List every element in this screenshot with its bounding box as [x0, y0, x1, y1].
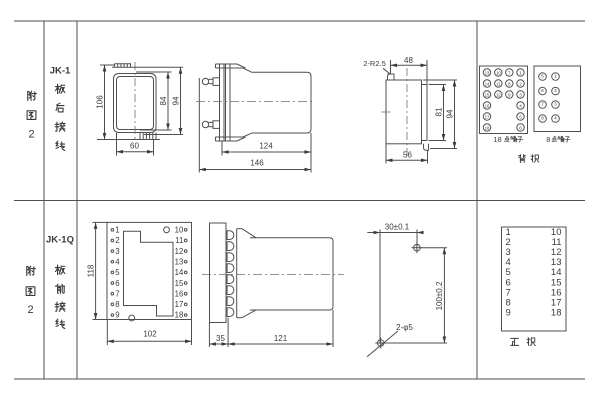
svg-text:2: 2: [27, 304, 33, 316]
svg-text:8: 8: [546, 135, 550, 144]
svg-text:48: 48: [404, 56, 413, 65]
svg-text:9: 9: [115, 311, 119, 320]
svg-text:3: 3: [554, 101, 557, 107]
svg-text:18: 18: [551, 308, 562, 319]
svg-text:94: 94: [446, 109, 455, 118]
svg-text:13: 13: [485, 70, 490, 75]
svg-text:18: 18: [485, 125, 490, 130]
svg-text:102: 102: [143, 330, 157, 339]
svg-text:2-R2.5: 2-R2.5: [363, 59, 386, 68]
svg-text:10: 10: [496, 70, 501, 75]
svg-text:12: 12: [175, 247, 184, 256]
svg-text:2-φ5: 2-φ5: [396, 323, 413, 332]
svg-text:18: 18: [493, 135, 501, 144]
svg-text:100±0.2: 100±0.2: [435, 281, 444, 310]
svg-text:84: 84: [159, 96, 168, 105]
svg-text:6: 6: [541, 88, 544, 94]
svg-text:15: 15: [485, 92, 490, 97]
svg-text:1: 1: [519, 70, 522, 75]
svg-text:4: 4: [554, 115, 557, 121]
svg-text:3: 3: [519, 92, 522, 97]
svg-text:2: 2: [28, 129, 34, 141]
svg-text:5: 5: [115, 268, 120, 277]
svg-text:7: 7: [115, 289, 119, 298]
svg-text:94: 94: [172, 96, 181, 105]
svg-text:12: 12: [496, 92, 501, 97]
svg-text:124: 124: [259, 142, 273, 151]
svg-text:121: 121: [274, 334, 288, 343]
svg-text:8: 8: [541, 115, 544, 121]
svg-text:11: 11: [175, 236, 183, 245]
svg-text:106: 106: [96, 95, 105, 109]
svg-text:6: 6: [519, 125, 522, 130]
svg-text:5: 5: [541, 73, 544, 79]
svg-text:8: 8: [508, 81, 511, 86]
svg-text:1: 1: [554, 73, 557, 79]
svg-text:17: 17: [485, 114, 490, 119]
svg-text:18: 18: [175, 311, 184, 320]
svg-text:81: 81: [435, 107, 444, 116]
svg-text:2: 2: [519, 81, 522, 86]
svg-text:7: 7: [508, 70, 511, 75]
svg-text:146: 146: [250, 159, 264, 168]
svg-text:118: 118: [87, 264, 96, 277]
svg-text:35: 35: [216, 334, 225, 343]
svg-text:13: 13: [175, 257, 184, 266]
svg-text:10: 10: [175, 226, 184, 235]
svg-text:3: 3: [115, 247, 119, 256]
svg-text:14: 14: [485, 81, 490, 86]
svg-text:JK-1Q: JK-1Q: [46, 235, 74, 246]
svg-text:9: 9: [506, 308, 511, 319]
svg-text:4: 4: [519, 103, 522, 108]
svg-text:5: 5: [519, 114, 522, 119]
svg-text:30±0.1: 30±0.1: [385, 223, 410, 232]
svg-text:2: 2: [115, 236, 119, 245]
svg-text:2: 2: [554, 88, 557, 94]
svg-text:17: 17: [175, 300, 184, 309]
svg-text:16: 16: [175, 289, 184, 298]
svg-text:14: 14: [175, 268, 184, 277]
svg-text:1: 1: [115, 226, 119, 235]
svg-text:16: 16: [485, 103, 490, 108]
svg-text:56: 56: [403, 151, 412, 160]
svg-text:4: 4: [115, 257, 120, 266]
svg-text:60: 60: [130, 142, 139, 151]
svg-text:9: 9: [508, 92, 511, 97]
svg-text:6: 6: [115, 279, 119, 288]
svg-text:7: 7: [541, 101, 544, 107]
svg-text:11: 11: [496, 81, 501, 86]
svg-text:JK-1: JK-1: [50, 66, 71, 77]
svg-text:8: 8: [115, 300, 119, 309]
svg-text:15: 15: [175, 279, 184, 288]
